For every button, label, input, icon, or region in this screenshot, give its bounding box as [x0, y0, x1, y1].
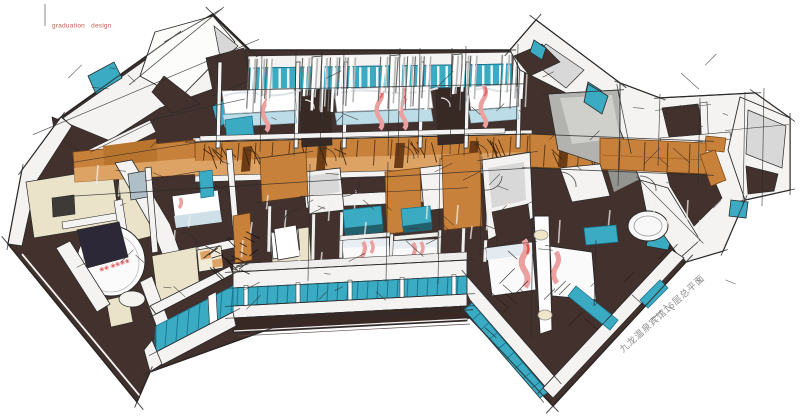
svg-text:graduation design: graduation design [52, 23, 112, 30]
